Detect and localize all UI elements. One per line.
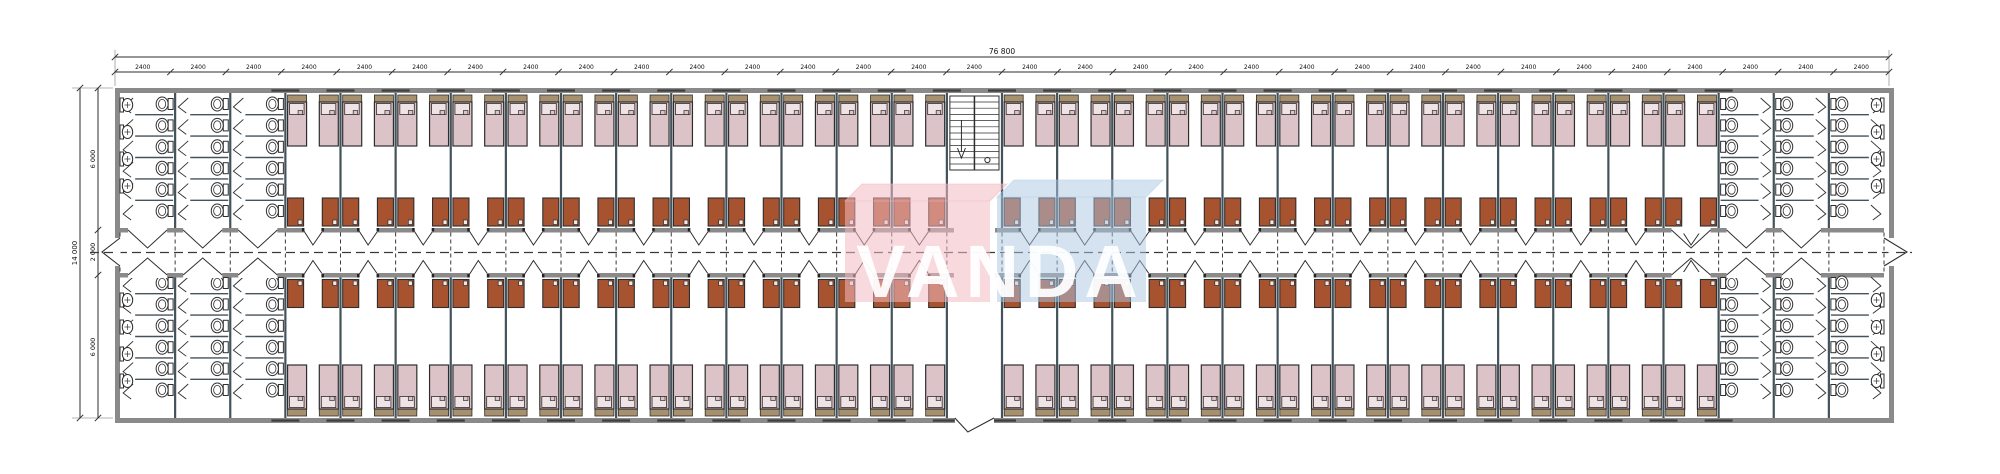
toilet-tank xyxy=(1721,278,1726,289)
bed-headboard-shelf xyxy=(1445,95,1464,102)
bed-headboard-shelf xyxy=(1587,95,1606,102)
watermark-blue-box-top xyxy=(997,180,1163,197)
stall-door-swing xyxy=(1871,277,1881,292)
bay-width-label: 2400 xyxy=(911,64,926,71)
cabinet-notch xyxy=(739,220,743,225)
bed-headboard-shelf xyxy=(1146,409,1165,416)
window xyxy=(988,89,1016,91)
window xyxy=(271,89,299,91)
bed-headboard-shelf xyxy=(485,95,504,102)
door-opening xyxy=(800,272,818,278)
pillow-notch xyxy=(1212,111,1217,115)
bed-headboard-shelf xyxy=(508,95,527,102)
stall-door-swing xyxy=(1761,298,1771,313)
pillow-notch xyxy=(495,397,500,401)
window xyxy=(602,89,630,91)
door-opening xyxy=(469,228,487,234)
bay-width-label: 2400 xyxy=(1632,64,1647,71)
pillow-notch xyxy=(1432,111,1437,115)
stall-door-swing xyxy=(1816,205,1826,220)
window xyxy=(1594,419,1622,421)
bay-width-label: 2400 xyxy=(1466,64,1481,71)
room-bay xyxy=(1555,95,1606,245)
pillow-notch xyxy=(1401,111,1406,115)
room-bay xyxy=(1611,95,1662,245)
bed-headboard-shelf xyxy=(1225,409,1244,416)
cabinet-notch xyxy=(774,220,778,225)
bed-headboard-shelf xyxy=(1587,409,1606,416)
bay-width-label: 2400 xyxy=(1188,64,1203,71)
door-opening xyxy=(304,272,322,278)
bay-width-label: 2400 xyxy=(856,64,871,71)
bed-headboard-shelf xyxy=(1059,95,1078,102)
room-bay xyxy=(453,95,504,245)
door-hinge xyxy=(707,228,710,232)
door-opening xyxy=(1627,272,1645,278)
bed-headboard-shelf xyxy=(1477,95,1496,102)
room-bay xyxy=(673,95,724,245)
door-hinge xyxy=(1259,228,1262,232)
pillow-notch xyxy=(739,111,744,115)
bed-headboard-shelf xyxy=(1335,95,1354,102)
cabinet-notch xyxy=(774,281,778,286)
cabinet-notch xyxy=(719,220,723,225)
bed-headboard-shelf xyxy=(1201,409,1220,416)
door-opening xyxy=(690,272,708,278)
cabinet-notch xyxy=(553,281,557,286)
stall-door-swing xyxy=(1816,184,1826,199)
door-hinge xyxy=(487,228,490,232)
cabinet-notch xyxy=(388,281,392,286)
pillow-notch xyxy=(1708,397,1713,401)
pillow-notch xyxy=(1653,397,1658,401)
bed-headboard-shelf xyxy=(760,409,779,416)
bed-headboard-shelf xyxy=(650,95,669,102)
bed-headboard-shelf xyxy=(453,95,472,102)
window xyxy=(1319,419,1347,421)
cabinet-notch xyxy=(1401,281,1405,286)
room-bay xyxy=(729,95,780,245)
pillow-notch xyxy=(353,111,358,115)
pillow-notch xyxy=(849,111,854,115)
pillow-notch xyxy=(408,111,413,115)
door-hinge xyxy=(487,274,490,278)
room-bay xyxy=(618,261,669,417)
toilet-tank xyxy=(1831,363,1836,374)
pillow-notch xyxy=(936,111,941,115)
toilet-tank xyxy=(1776,342,1781,353)
bed-headboard-shelf xyxy=(1114,409,1133,416)
door-hinge xyxy=(1369,228,1372,232)
pillow-notch xyxy=(739,397,744,401)
stall-door-swing xyxy=(1816,277,1826,292)
room-bay xyxy=(1445,261,1496,417)
room-bay xyxy=(1611,261,1662,417)
top-dimension-chain: 76 8002400240024002400240024002400240024… xyxy=(112,47,1892,86)
toilet-tank xyxy=(168,385,173,396)
stall-door-swing xyxy=(233,363,243,378)
cabinet-notch xyxy=(1656,220,1660,225)
pillow-notch xyxy=(1401,397,1406,401)
pillow-notch xyxy=(1487,397,1492,401)
door-hinge xyxy=(1644,228,1647,232)
bed-headboard-shelf xyxy=(288,409,307,416)
pillow-notch xyxy=(1212,397,1217,401)
cabinet-notch xyxy=(829,220,833,225)
stall-door-swing xyxy=(178,363,188,378)
stall-door-swing xyxy=(178,205,188,220)
bed-headboard-shelf xyxy=(1666,409,1685,416)
bed-headboard-shelf xyxy=(1201,95,1220,102)
room-bay xyxy=(1445,95,1496,245)
pillow-notch xyxy=(1345,397,1350,401)
toilet-tank xyxy=(1831,278,1836,289)
pillow-notch xyxy=(1235,397,1240,401)
window xyxy=(1539,419,1567,421)
door-hinge xyxy=(1534,274,1537,278)
cabinet-notch xyxy=(608,281,612,286)
pillow-notch xyxy=(881,397,886,401)
floor-plan-drawing: 76 8002400240024002400240024002400240024… xyxy=(0,0,2000,474)
toilet-tank xyxy=(1776,141,1781,152)
bed-headboard-shelf xyxy=(430,409,449,416)
pillow-notch xyxy=(298,111,303,115)
cabinet-notch xyxy=(463,220,467,225)
cabinet-notch xyxy=(353,220,357,225)
bed-headboard-shelf xyxy=(430,95,449,102)
door-hinge xyxy=(542,274,545,278)
cabinet-notch xyxy=(1345,220,1349,225)
stall-door-swing xyxy=(1816,341,1826,356)
toilet-tank xyxy=(1831,385,1836,396)
pillow-notch xyxy=(1598,111,1603,115)
room-bay xyxy=(729,261,780,417)
door-hinge xyxy=(1369,274,1372,278)
stall-door-swing xyxy=(1816,141,1826,156)
cabinet-notch xyxy=(1215,281,1219,286)
cabinet-notch xyxy=(298,281,302,286)
toilet-tank xyxy=(1831,120,1836,131)
bay-width-label: 2400 xyxy=(1854,64,1869,71)
stall-door-swing xyxy=(1761,341,1771,356)
stall-door-swing xyxy=(178,298,188,313)
bed-headboard-shelf xyxy=(1335,409,1354,416)
pillow-notch xyxy=(881,111,886,115)
cabinet-notch xyxy=(794,281,798,286)
stall-door-swing xyxy=(233,341,243,356)
stall-door-swing xyxy=(1816,320,1826,335)
bed-headboard-shelf xyxy=(288,95,307,102)
door-hinge xyxy=(321,228,324,232)
cabinet-notch xyxy=(333,281,337,286)
bed-headboard-shelf xyxy=(673,409,692,416)
bed-headboard-shelf xyxy=(453,409,472,416)
room-bay xyxy=(508,261,559,417)
pillow-notch xyxy=(1566,111,1571,115)
toilet-tank xyxy=(223,299,228,310)
pillow-notch xyxy=(463,111,468,115)
bay-width-label: 2400 xyxy=(523,64,538,71)
window xyxy=(1705,419,1733,421)
bed-headboard-shelf xyxy=(374,409,393,416)
cabinet-notch xyxy=(1401,220,1405,225)
bed-headboard-shelf xyxy=(729,409,748,416)
pillow-notch xyxy=(519,397,524,401)
sanitary-door-opening xyxy=(1672,228,1711,234)
bed-headboard-shelf xyxy=(650,409,669,416)
window xyxy=(382,419,410,421)
door-opening xyxy=(1406,272,1424,278)
toilet-tank xyxy=(278,385,283,396)
toilet-tank xyxy=(168,184,173,195)
bed-headboard-shelf xyxy=(1004,95,1023,102)
room-bay xyxy=(1170,95,1221,245)
window xyxy=(657,419,685,421)
pillow-notch xyxy=(605,111,610,115)
pillow-notch xyxy=(550,397,555,401)
stall-door-swing xyxy=(1871,205,1881,220)
bed-headboard-shelf xyxy=(1367,95,1386,102)
toilet-tank xyxy=(168,363,173,374)
pillow-notch xyxy=(1125,397,1130,401)
room-bay xyxy=(288,95,339,245)
bay-width-label: 2400 xyxy=(1743,64,1758,71)
door-opening xyxy=(414,272,432,278)
window xyxy=(1098,419,1126,421)
toilet-tank xyxy=(223,385,228,396)
bed-headboard-shelf xyxy=(1146,95,1165,102)
door-hinge xyxy=(818,228,821,232)
bed-headboard-shelf xyxy=(784,409,803,416)
cabinet-notch xyxy=(629,220,633,225)
toilet-tank xyxy=(1721,342,1726,353)
window xyxy=(1484,89,1512,91)
pillow-notch xyxy=(629,111,634,115)
toilet-tank xyxy=(1721,206,1726,217)
room-bay xyxy=(453,261,504,417)
door-hinge xyxy=(1424,274,1427,278)
bed-headboard-shelf xyxy=(540,95,559,102)
door-opening xyxy=(1241,272,1259,278)
bed-headboard-shelf xyxy=(1280,409,1299,416)
pillow-notch xyxy=(661,111,666,115)
door-hinge xyxy=(1644,274,1647,278)
toilet-tank xyxy=(168,99,173,110)
door-opening xyxy=(1517,228,1535,234)
bed-headboard-shelf xyxy=(374,95,393,102)
cabinet-notch xyxy=(1490,281,1494,286)
pillow-notch xyxy=(1621,397,1626,401)
pillow-notch xyxy=(794,397,799,401)
cabinet-notch xyxy=(1325,281,1329,286)
depth-segment-label: 6 000 xyxy=(89,150,97,169)
vanda-watermark: VANDA xyxy=(845,180,1163,313)
window xyxy=(878,89,906,91)
pillow-notch xyxy=(904,397,909,401)
pillow-notch xyxy=(495,111,500,115)
toilet-tank xyxy=(1776,163,1781,174)
bed-headboard-shelf xyxy=(1170,95,1189,102)
toilet-tank xyxy=(1721,385,1726,396)
pillow-notch xyxy=(1102,397,1107,401)
stall-door-swing xyxy=(233,119,243,134)
pillow-notch xyxy=(936,397,941,401)
toilet-tank xyxy=(1721,299,1726,310)
door-opening xyxy=(524,272,542,278)
bed-headboard-shelf xyxy=(398,409,417,416)
door-hinge xyxy=(1589,228,1592,232)
bed-headboard-shelf xyxy=(1256,409,1275,416)
toilet-tank xyxy=(278,278,283,289)
door-opening xyxy=(469,272,487,278)
stall-door-swing xyxy=(233,298,243,313)
toilet-tank xyxy=(1721,141,1726,152)
depth-segment-label: 6 000 xyxy=(89,338,97,357)
cabinet-notch xyxy=(1676,220,1680,225)
sanitary-door-opening xyxy=(128,272,167,278)
sanitary-door-opening xyxy=(1727,228,1766,234)
pillow-notch xyxy=(1180,111,1185,115)
window xyxy=(437,89,465,91)
toilet-tank xyxy=(223,163,228,174)
bay-width-label: 2400 xyxy=(1687,64,1702,71)
stall-door-swing xyxy=(233,384,243,399)
stall-door-swing xyxy=(1816,162,1826,177)
bed-headboard-shelf xyxy=(705,409,724,416)
window xyxy=(271,419,299,421)
window xyxy=(1705,89,1733,91)
window xyxy=(768,419,796,421)
cabinet-notch xyxy=(739,281,743,286)
toilet-tank xyxy=(223,184,228,195)
pillow-notch xyxy=(771,397,776,401)
cabinet-notch xyxy=(684,220,688,225)
bay-width-label: 2400 xyxy=(967,64,982,71)
toilet-tank xyxy=(1776,385,1781,396)
pillow-notch xyxy=(1543,111,1548,115)
pillow-notch xyxy=(1015,111,1020,115)
room-bay xyxy=(1555,261,1606,417)
room-bay xyxy=(1225,95,1276,245)
pillow-notch xyxy=(1180,397,1185,401)
stall-door-swing xyxy=(233,162,243,177)
pillow-notch xyxy=(298,397,303,401)
pillow-notch xyxy=(550,111,555,115)
door-hinge xyxy=(1148,228,1151,232)
stall-door-swing xyxy=(233,277,243,292)
cabinet-notch xyxy=(1325,220,1329,225)
cabinet-notch xyxy=(629,281,633,286)
pillow-notch xyxy=(1157,111,1162,115)
door-hinge xyxy=(818,274,821,278)
toilet-tank xyxy=(1721,320,1726,331)
watermark-text: VANDA xyxy=(856,230,1144,313)
pillow-notch xyxy=(1235,111,1240,115)
pillow-notch xyxy=(1676,111,1681,115)
door-opening xyxy=(359,228,377,234)
window xyxy=(492,89,520,91)
pillow-notch xyxy=(826,111,831,115)
cabinet-notch xyxy=(498,281,502,286)
window xyxy=(1650,419,1678,421)
cabinet-notch xyxy=(1180,281,1184,286)
pillow-notch xyxy=(330,111,335,115)
cabinet-notch xyxy=(1511,281,1515,286)
bed-headboard-shelf xyxy=(595,409,614,416)
door-opening xyxy=(1627,228,1645,234)
bay-width-label: 2400 xyxy=(301,64,316,71)
pillow-notch xyxy=(1708,111,1713,115)
room-bay xyxy=(1390,95,1441,245)
bed-headboard-shelf xyxy=(1036,95,1055,102)
toilet-tank xyxy=(1831,184,1836,195)
cabinet-notch xyxy=(443,220,447,225)
bed-headboard-shelf xyxy=(673,95,692,102)
bed-headboard-shelf xyxy=(398,95,417,102)
bay-width-label: 2400 xyxy=(1576,64,1591,71)
room-bay xyxy=(784,95,835,245)
pillow-notch xyxy=(1046,111,1051,115)
cabinet-notch xyxy=(1290,281,1294,286)
toilet-tank xyxy=(278,99,283,110)
cabinet-notch xyxy=(408,281,412,286)
door-hinge xyxy=(321,274,324,278)
bed-headboard-shelf xyxy=(1114,95,1133,102)
toilet-tank xyxy=(1776,120,1781,131)
bed-headboard-shelf xyxy=(1312,409,1331,416)
bed-headboard-shelf xyxy=(540,409,559,416)
bed-headboard-shelf xyxy=(1445,409,1464,416)
cabinet-notch xyxy=(1456,281,1460,286)
bay-width-label: 2400 xyxy=(745,64,760,71)
cabinet-notch xyxy=(1711,281,1715,286)
pillow-notch xyxy=(716,111,721,115)
toilet-tank xyxy=(168,206,173,217)
stall-door-swing xyxy=(178,341,188,356)
door-hinge xyxy=(1203,274,1206,278)
stall-door-swing xyxy=(1761,184,1771,199)
toilet-tank xyxy=(168,141,173,152)
door-hinge xyxy=(1479,274,1482,278)
pillow-notch xyxy=(684,397,689,401)
stall-door-swing xyxy=(1816,119,1826,134)
room-bay xyxy=(563,95,614,245)
stall-door-swing xyxy=(1816,98,1826,113)
pillow-notch xyxy=(826,397,831,401)
toilet-tank xyxy=(223,206,228,217)
pillow-notch xyxy=(1015,397,1020,401)
cabinet-notch xyxy=(794,220,798,225)
window xyxy=(712,419,740,421)
pillow-notch xyxy=(440,111,445,115)
toilet-tank xyxy=(1831,342,1836,353)
bay-width-label: 2400 xyxy=(579,64,594,71)
window xyxy=(1043,419,1071,421)
cabinet-notch xyxy=(553,220,557,225)
door-opening xyxy=(1351,228,1369,234)
bed-headboard-shelf xyxy=(1091,95,1110,102)
bay-width-label: 2400 xyxy=(468,64,483,71)
bed-headboard-shelf xyxy=(1422,95,1441,102)
toilet-tank xyxy=(1721,363,1726,374)
window xyxy=(933,89,961,91)
door-hinge xyxy=(377,274,380,278)
cabinet-notch xyxy=(1180,220,1184,225)
toilet-tank xyxy=(223,342,228,353)
toilet-tank xyxy=(223,141,228,152)
cabinet-notch xyxy=(1380,220,1384,225)
door-opening xyxy=(800,228,818,234)
